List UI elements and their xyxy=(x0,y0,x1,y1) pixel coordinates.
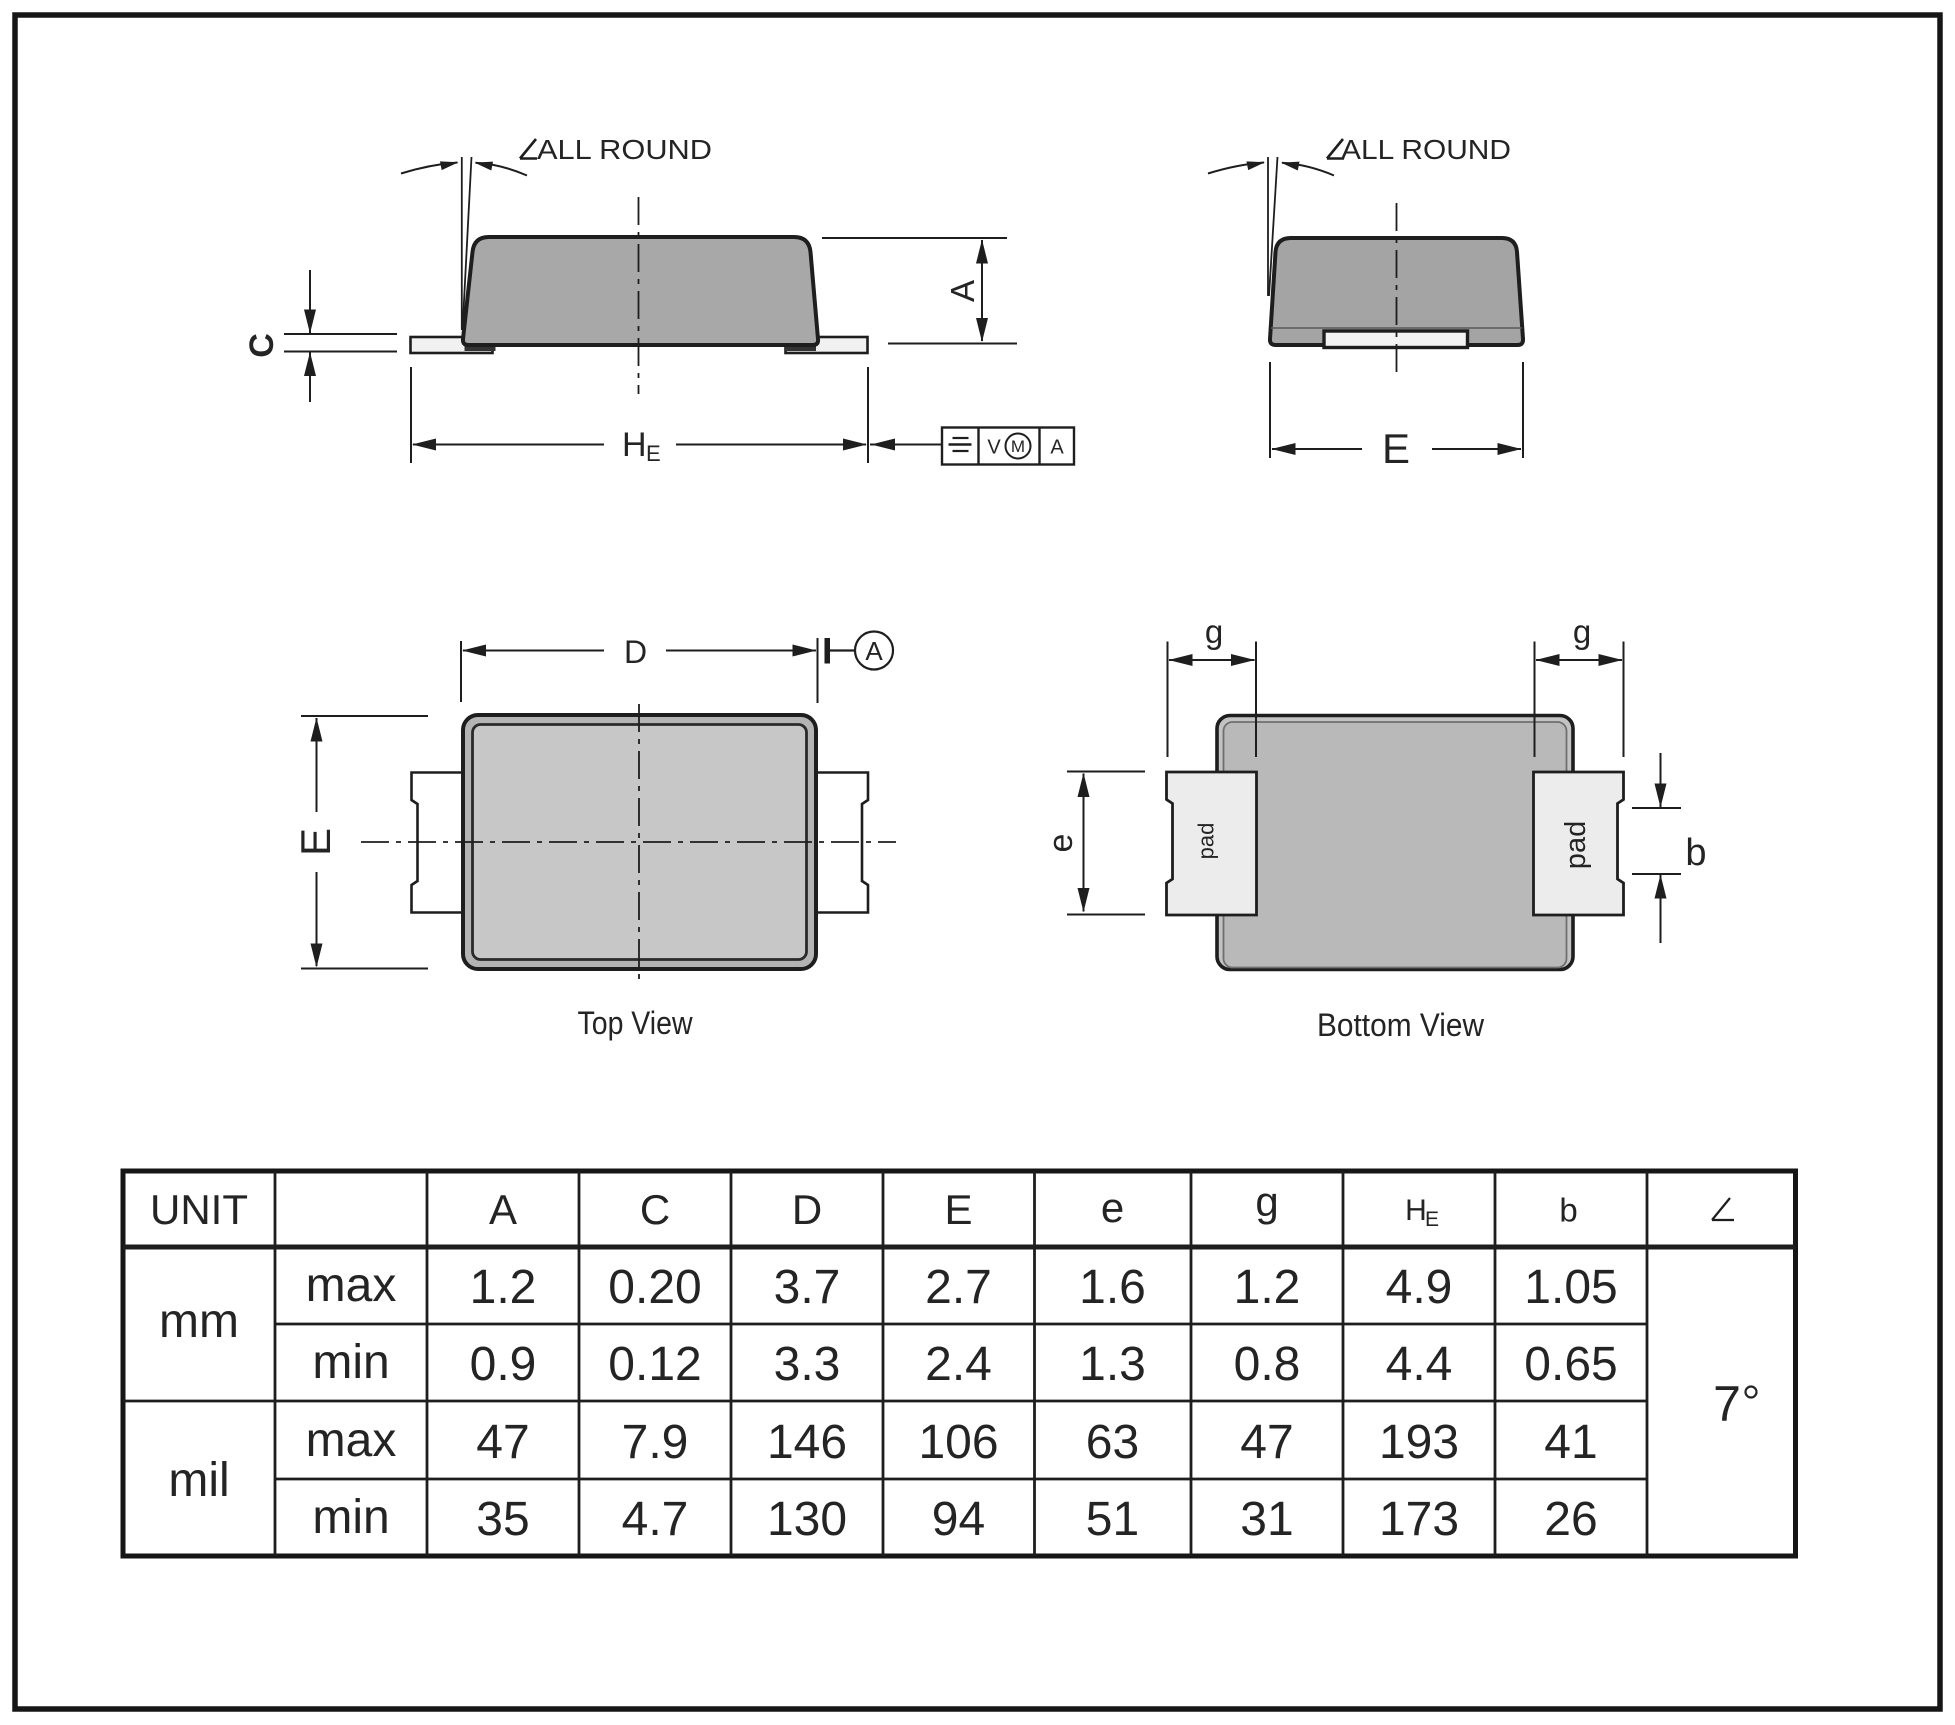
svg-text:146: 146 xyxy=(767,1416,847,1469)
svg-text:V: V xyxy=(987,437,1001,459)
svg-text:Top View: Top View xyxy=(578,1005,694,1041)
svg-text:0.12: 0.12 xyxy=(608,1338,701,1391)
svg-text:47: 47 xyxy=(476,1416,529,1469)
svg-text:130: 130 xyxy=(767,1493,847,1546)
svg-text:H: H xyxy=(1405,1194,1427,1227)
svg-text:H: H xyxy=(622,426,647,464)
svg-text:1.05: 1.05 xyxy=(1524,1261,1617,1314)
svg-text:2.7: 2.7 xyxy=(925,1261,992,1314)
svg-text:173: 173 xyxy=(1379,1493,1459,1546)
svg-text:E: E xyxy=(944,1186,972,1233)
svg-text:e: e xyxy=(1042,834,1080,853)
svg-text:A: A xyxy=(1050,437,1064,459)
svg-text:26: 26 xyxy=(1544,1493,1597,1546)
svg-text:M: M xyxy=(1011,437,1025,456)
svg-text:UNIT: UNIT xyxy=(150,1186,248,1233)
svg-text:E: E xyxy=(1382,425,1410,472)
svg-text:E: E xyxy=(646,441,661,466)
svg-text:ALL ROUND: ALL ROUND xyxy=(1341,134,1511,165)
svg-text:min: min xyxy=(312,1491,389,1544)
svg-text:4.7: 4.7 xyxy=(622,1493,689,1546)
svg-text:min: min xyxy=(312,1336,389,1389)
svg-text:193: 193 xyxy=(1379,1416,1459,1469)
svg-text:94: 94 xyxy=(932,1493,985,1546)
svg-text:pad: pad xyxy=(1194,823,1219,860)
svg-text:max: max xyxy=(306,1414,397,1467)
svg-text:31: 31 xyxy=(1240,1493,1293,1546)
svg-text:7: 7 xyxy=(1713,1376,1741,1432)
svg-text:7.9: 7.9 xyxy=(622,1416,689,1469)
svg-text:e: e xyxy=(1101,1184,1124,1231)
svg-text:A: A xyxy=(489,1186,517,1233)
svg-text:47: 47 xyxy=(1240,1416,1293,1469)
svg-text:D: D xyxy=(792,1186,822,1233)
svg-text:1.3: 1.3 xyxy=(1079,1338,1146,1391)
svg-text:D: D xyxy=(624,634,647,670)
svg-text:1.2: 1.2 xyxy=(1234,1261,1301,1314)
svg-text:3.7: 3.7 xyxy=(774,1261,841,1314)
svg-text:0.20: 0.20 xyxy=(608,1261,701,1314)
svg-text:0.65: 0.65 xyxy=(1524,1338,1617,1391)
svg-text:E: E xyxy=(292,828,339,856)
svg-text:4.9: 4.9 xyxy=(1386,1261,1453,1314)
svg-text:mil: mil xyxy=(168,1454,229,1507)
svg-text:51: 51 xyxy=(1086,1493,1139,1546)
svg-text:g: g xyxy=(1255,1178,1278,1225)
svg-text:35: 35 xyxy=(476,1493,529,1546)
svg-text:0.8: 0.8 xyxy=(1234,1338,1301,1391)
svg-text:106: 106 xyxy=(918,1416,998,1469)
svg-text:b: b xyxy=(1559,1192,1577,1229)
svg-text:41: 41 xyxy=(1544,1416,1597,1469)
svg-text:b: b xyxy=(1685,832,1706,874)
svg-text:0.9: 0.9 xyxy=(470,1338,537,1391)
svg-text:3.3: 3.3 xyxy=(774,1338,841,1391)
svg-text:C: C xyxy=(640,1186,670,1233)
svg-text:63: 63 xyxy=(1086,1416,1139,1469)
svg-text:mm: mm xyxy=(159,1295,239,1348)
svg-text:C: C xyxy=(243,333,281,358)
svg-text:ALL ROUND: ALL ROUND xyxy=(537,134,712,165)
svg-text:4.4: 4.4 xyxy=(1386,1338,1453,1391)
svg-text:Bottom View: Bottom View xyxy=(1317,1007,1485,1043)
svg-text:A: A xyxy=(865,636,883,666)
svg-text:g: g xyxy=(1573,613,1591,650)
svg-text:1.2: 1.2 xyxy=(470,1261,537,1314)
svg-text:2.4: 2.4 xyxy=(925,1338,992,1391)
svg-text:max: max xyxy=(306,1259,397,1312)
svg-text:g: g xyxy=(1205,613,1223,650)
svg-text:pad: pad xyxy=(1560,821,1592,869)
svg-text:E: E xyxy=(1425,1208,1439,1231)
svg-text:1.6: 1.6 xyxy=(1079,1261,1146,1314)
svg-text:A: A xyxy=(944,280,981,302)
